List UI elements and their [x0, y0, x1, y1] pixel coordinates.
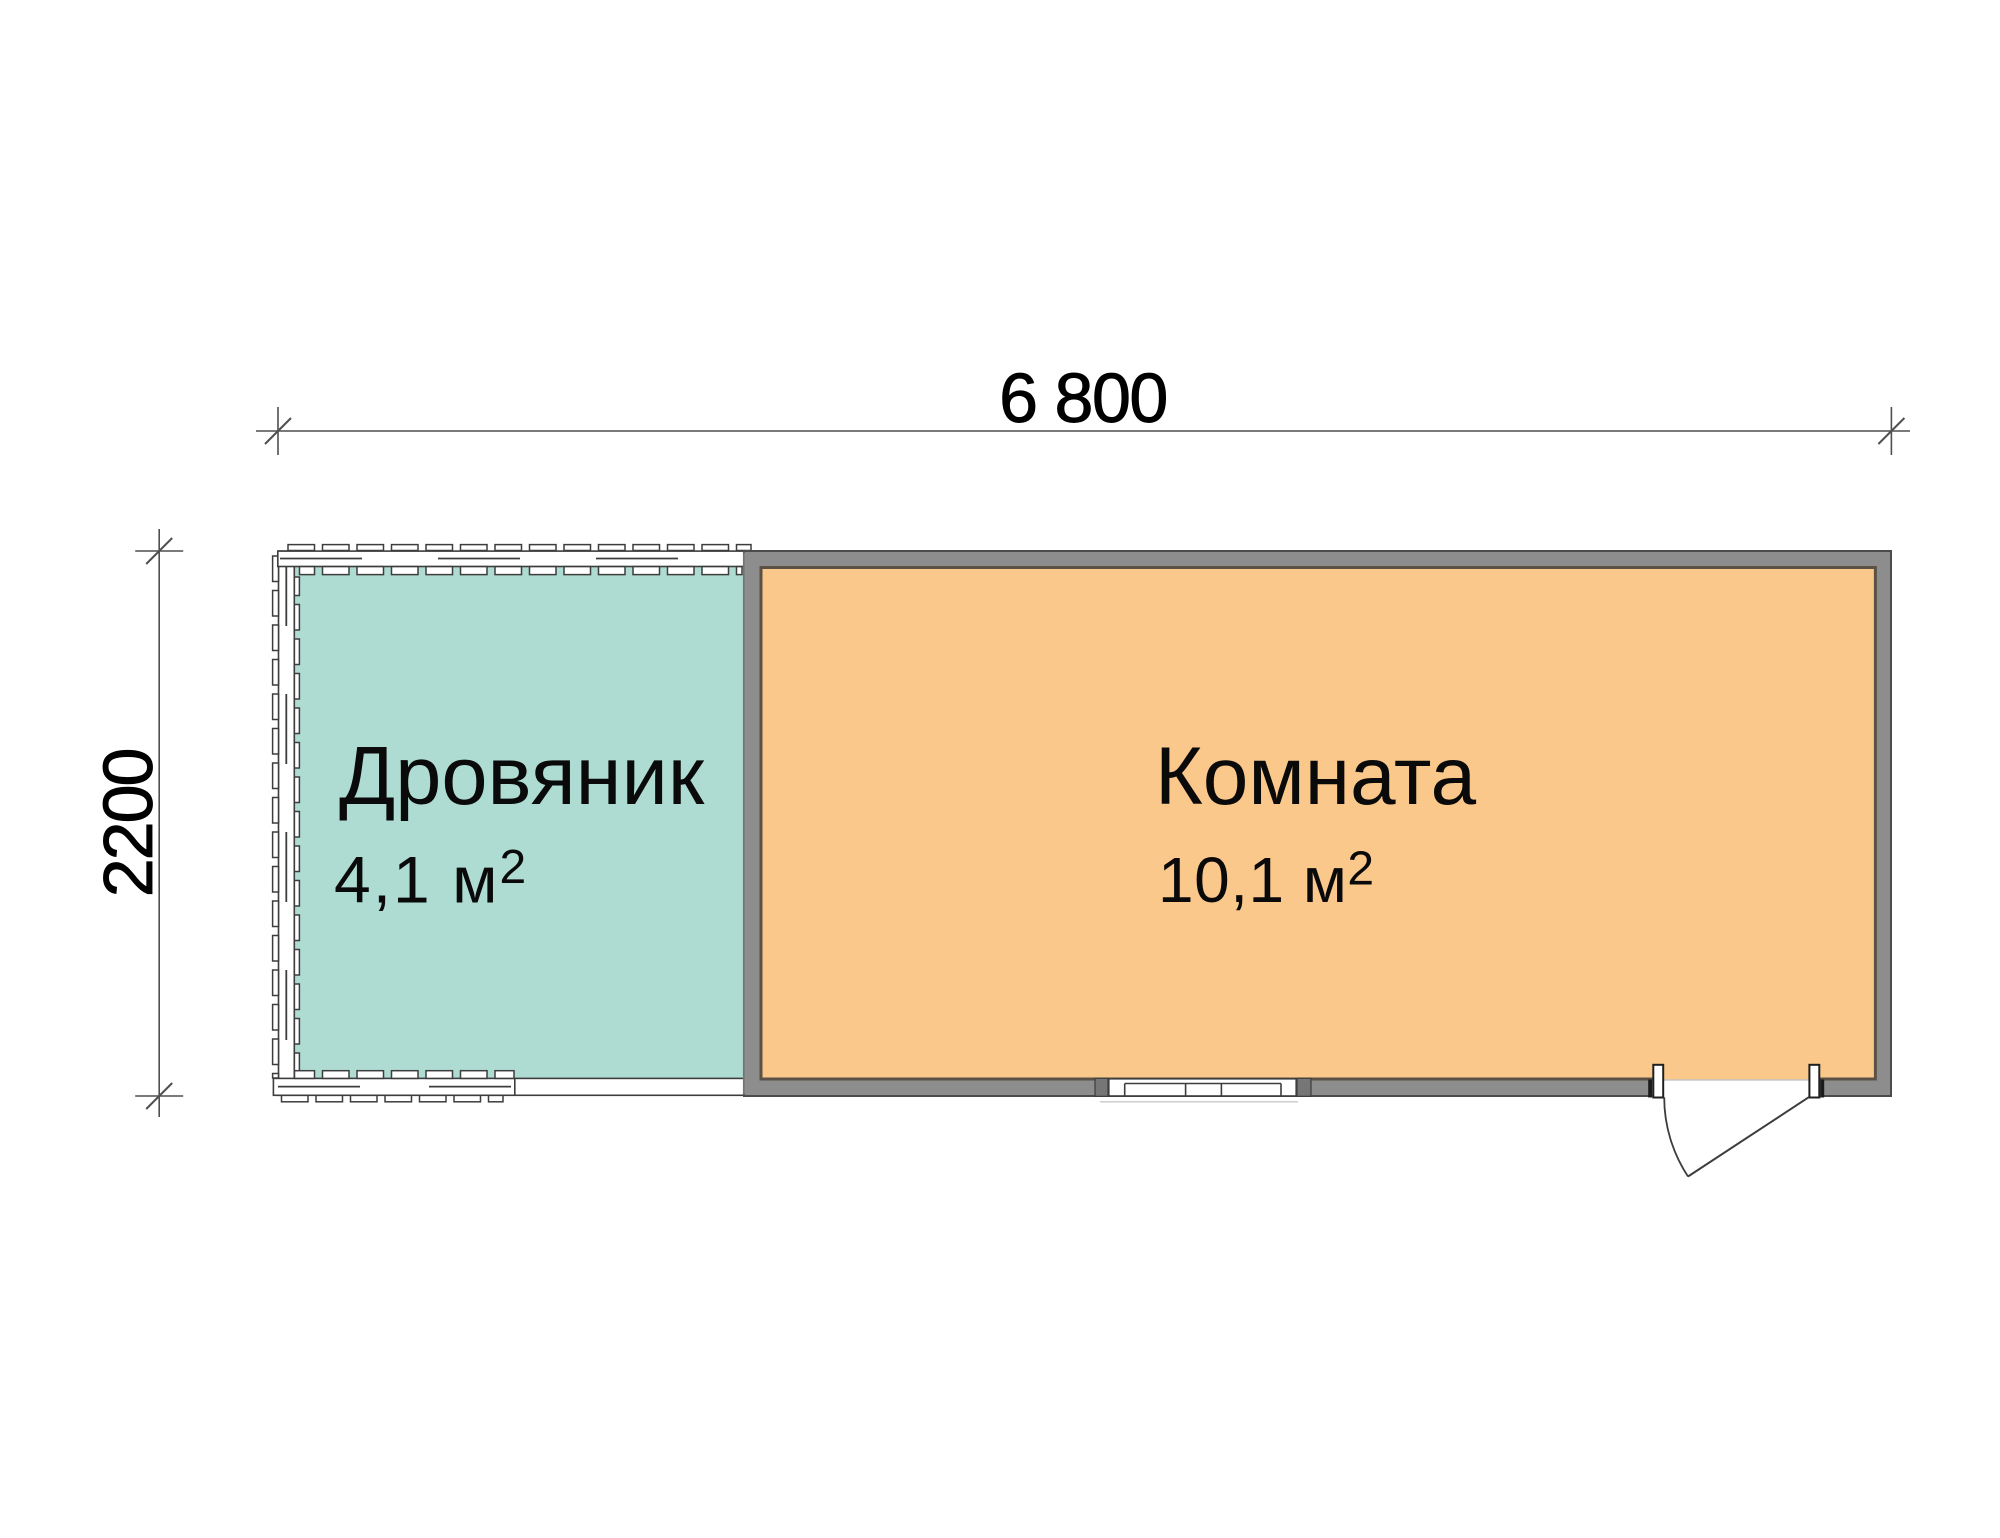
svg-text:4,1 м2: 4,1 м2: [334, 841, 528, 917]
svg-text:6 800: 6 800: [999, 359, 1167, 437]
svg-text:2200: 2200: [89, 749, 167, 897]
svg-text:Комната: Комната: [1155, 731, 1476, 822]
svg-text:Дровяник: Дровяник: [339, 729, 705, 822]
svg-text:10,1 м2: 10,1 м2: [1158, 843, 1375, 917]
